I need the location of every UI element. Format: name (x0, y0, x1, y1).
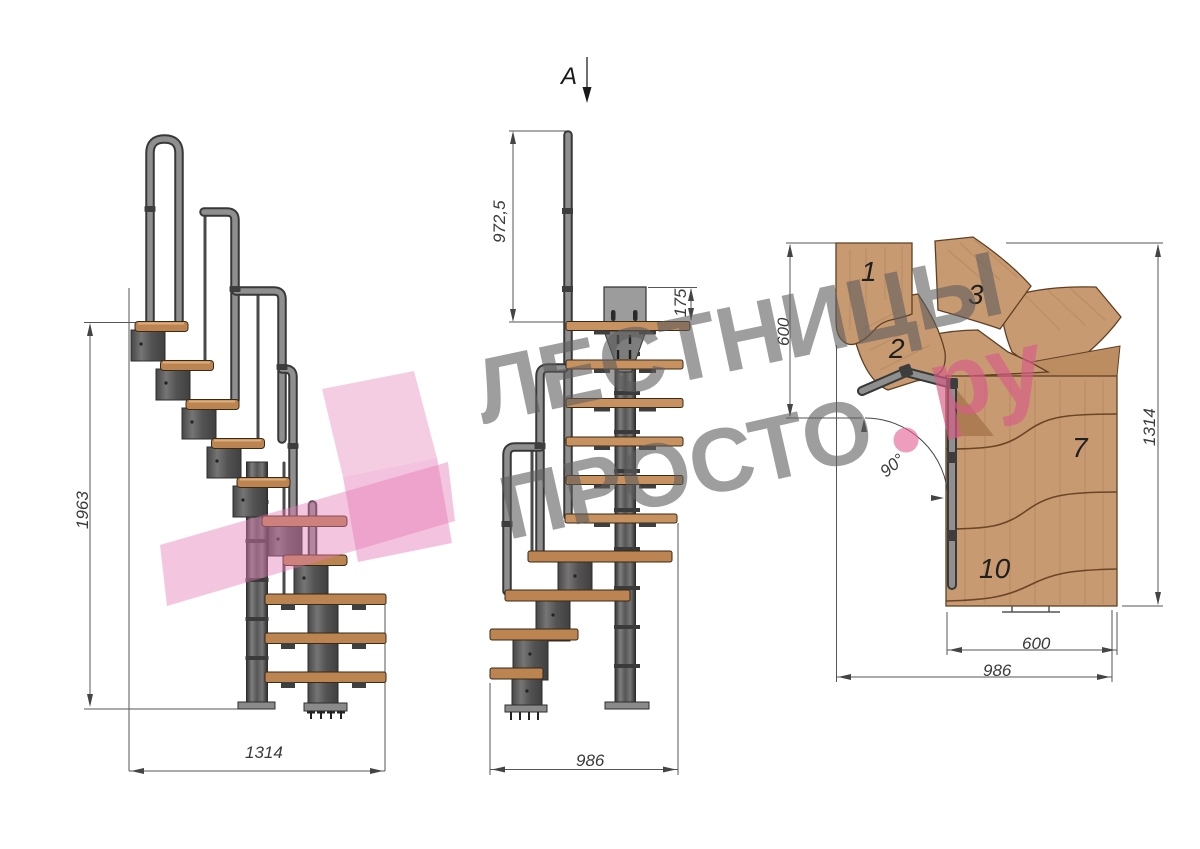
svg-text:986: 986 (576, 751, 605, 770)
svg-text:1314: 1314 (245, 743, 283, 762)
svg-text:1314: 1314 (1140, 408, 1159, 446)
svg-text:972,5: 972,5 (490, 200, 509, 243)
svg-text:986: 986 (983, 661, 1012, 680)
svg-text:A: A (559, 63, 577, 90)
svg-text:10: 10 (979, 553, 1011, 584)
svg-text:7: 7 (1072, 432, 1089, 463)
svg-text:600: 600 (1022, 634, 1051, 653)
svg-text:1963: 1963 (73, 491, 92, 529)
